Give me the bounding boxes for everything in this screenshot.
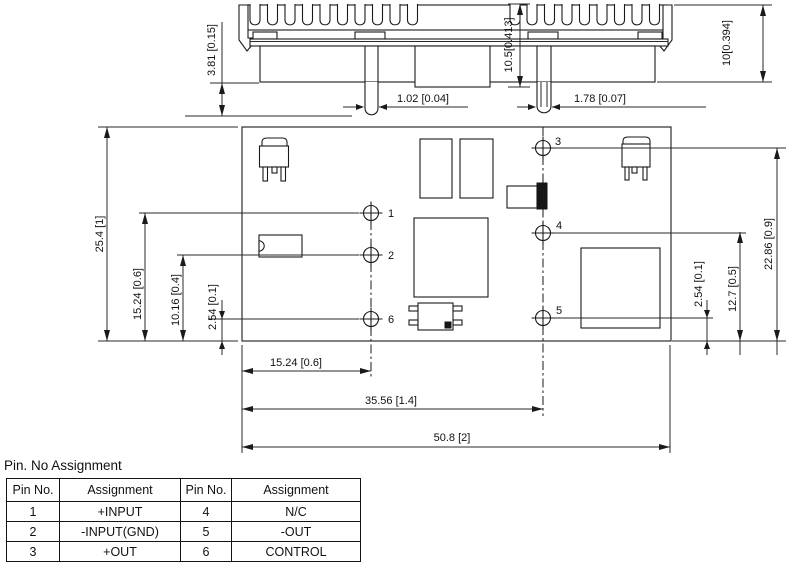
- component-transformer-b: [460, 139, 493, 198]
- dim-board-height: 25.4 [1]: [94, 216, 106, 253]
- dim-board-width: 50.8 [2]: [434, 432, 471, 444]
- pin-label-1: 1: [388, 208, 394, 220]
- pin-label-3: 3: [555, 136, 561, 148]
- header-assignment-1: Assignment: [60, 479, 181, 502]
- pin-label-4: 4: [556, 220, 562, 232]
- dim-height-mid: 10.5[0.413]: [503, 17, 515, 72]
- inner-component: [415, 46, 490, 87]
- cell-pin: 2: [7, 522, 60, 542]
- dim-height-right: 10[0.394]: [721, 20, 733, 66]
- standoffs: [253, 32, 662, 39]
- dim-pin-width-right: 1.78 [0.07]: [574, 93, 626, 105]
- dim-pin5-y: 2.54 [0.1]: [693, 261, 705, 307]
- cell-pin: 3: [7, 542, 60, 562]
- dim-pin3-y: 22.86 [0.9]: [763, 218, 775, 270]
- cell-assignment: +OUT: [60, 542, 181, 562]
- dim-pin-width-left: 1.02 [0.04]: [397, 93, 449, 105]
- component-capacitor: [507, 183, 547, 209]
- pin-label-6: 6: [388, 314, 394, 326]
- cell-assignment: +INPUT: [60, 502, 181, 522]
- mechanical-drawing-page: 3.81 [0.15] 10.5[0.413] 10[0.394] 1.02 […: [0, 0, 789, 567]
- side-view: 3.81 [0.15] 10.5[0.413] 10[0.394] 1.02 […: [185, 4, 772, 116]
- board-view: 1 2 3 4 5 6: [94, 127, 786, 453]
- component-transformer-a: [420, 139, 452, 198]
- dim-pin1-y: 15.24 [0.6]: [132, 268, 144, 320]
- dim-pin-col2-x: 35.56 [1.4]: [365, 395, 417, 407]
- cell-pin: 1: [7, 502, 60, 522]
- dim-pin6-y: 2.54 [0.1]: [207, 284, 219, 330]
- header-pin-no-1: Pin No.: [7, 479, 60, 502]
- cell-assignment: N/C: [232, 502, 361, 522]
- cell-pin: 6: [181, 542, 232, 562]
- dim-pin-col1-x: 15.24 [0.6]: [270, 357, 322, 369]
- table-row: 1 +INPUT 4 N/C: [7, 502, 361, 522]
- table-row: 3 +OUT 6 CONTROL: [7, 542, 361, 562]
- cell-pin: 4: [181, 502, 232, 522]
- table-row: 2 -INPUT(GND) 5 -OUT: [7, 522, 361, 542]
- cell-assignment: -INPUT(GND): [60, 522, 181, 542]
- dim-pin-length: 3.81 [0.15]: [206, 24, 218, 76]
- side-pin-left: [365, 82, 378, 115]
- pin-label-5: 5: [556, 305, 562, 317]
- dim-pin2-y: 10.16 [0.4]: [170, 274, 182, 326]
- cell-assignment: -OUT: [232, 522, 361, 542]
- header-pin-no-2: Pin No.: [181, 479, 232, 502]
- dim-pin4-y: 12.7 [0.5]: [727, 266, 739, 312]
- pin-label-2: 2: [388, 250, 394, 262]
- component-fuse: [259, 235, 302, 257]
- side-pin-right: [537, 82, 551, 113]
- table-header-row: Pin No. Assignment Pin No. Assignment: [7, 479, 361, 502]
- header-assignment-2: Assignment: [232, 479, 361, 502]
- cell-pin: 5: [181, 522, 232, 542]
- component-square-a: [414, 218, 488, 297]
- component-square-b: [581, 248, 660, 328]
- pin-table-title: Pin. No Assignment: [4, 458, 122, 473]
- pin-assignment-table: Pin No. Assignment Pin No. Assignment 1 …: [6, 478, 361, 562]
- pcb-substrate: [250, 39, 668, 46]
- cell-assignment: CONTROL: [232, 542, 361, 562]
